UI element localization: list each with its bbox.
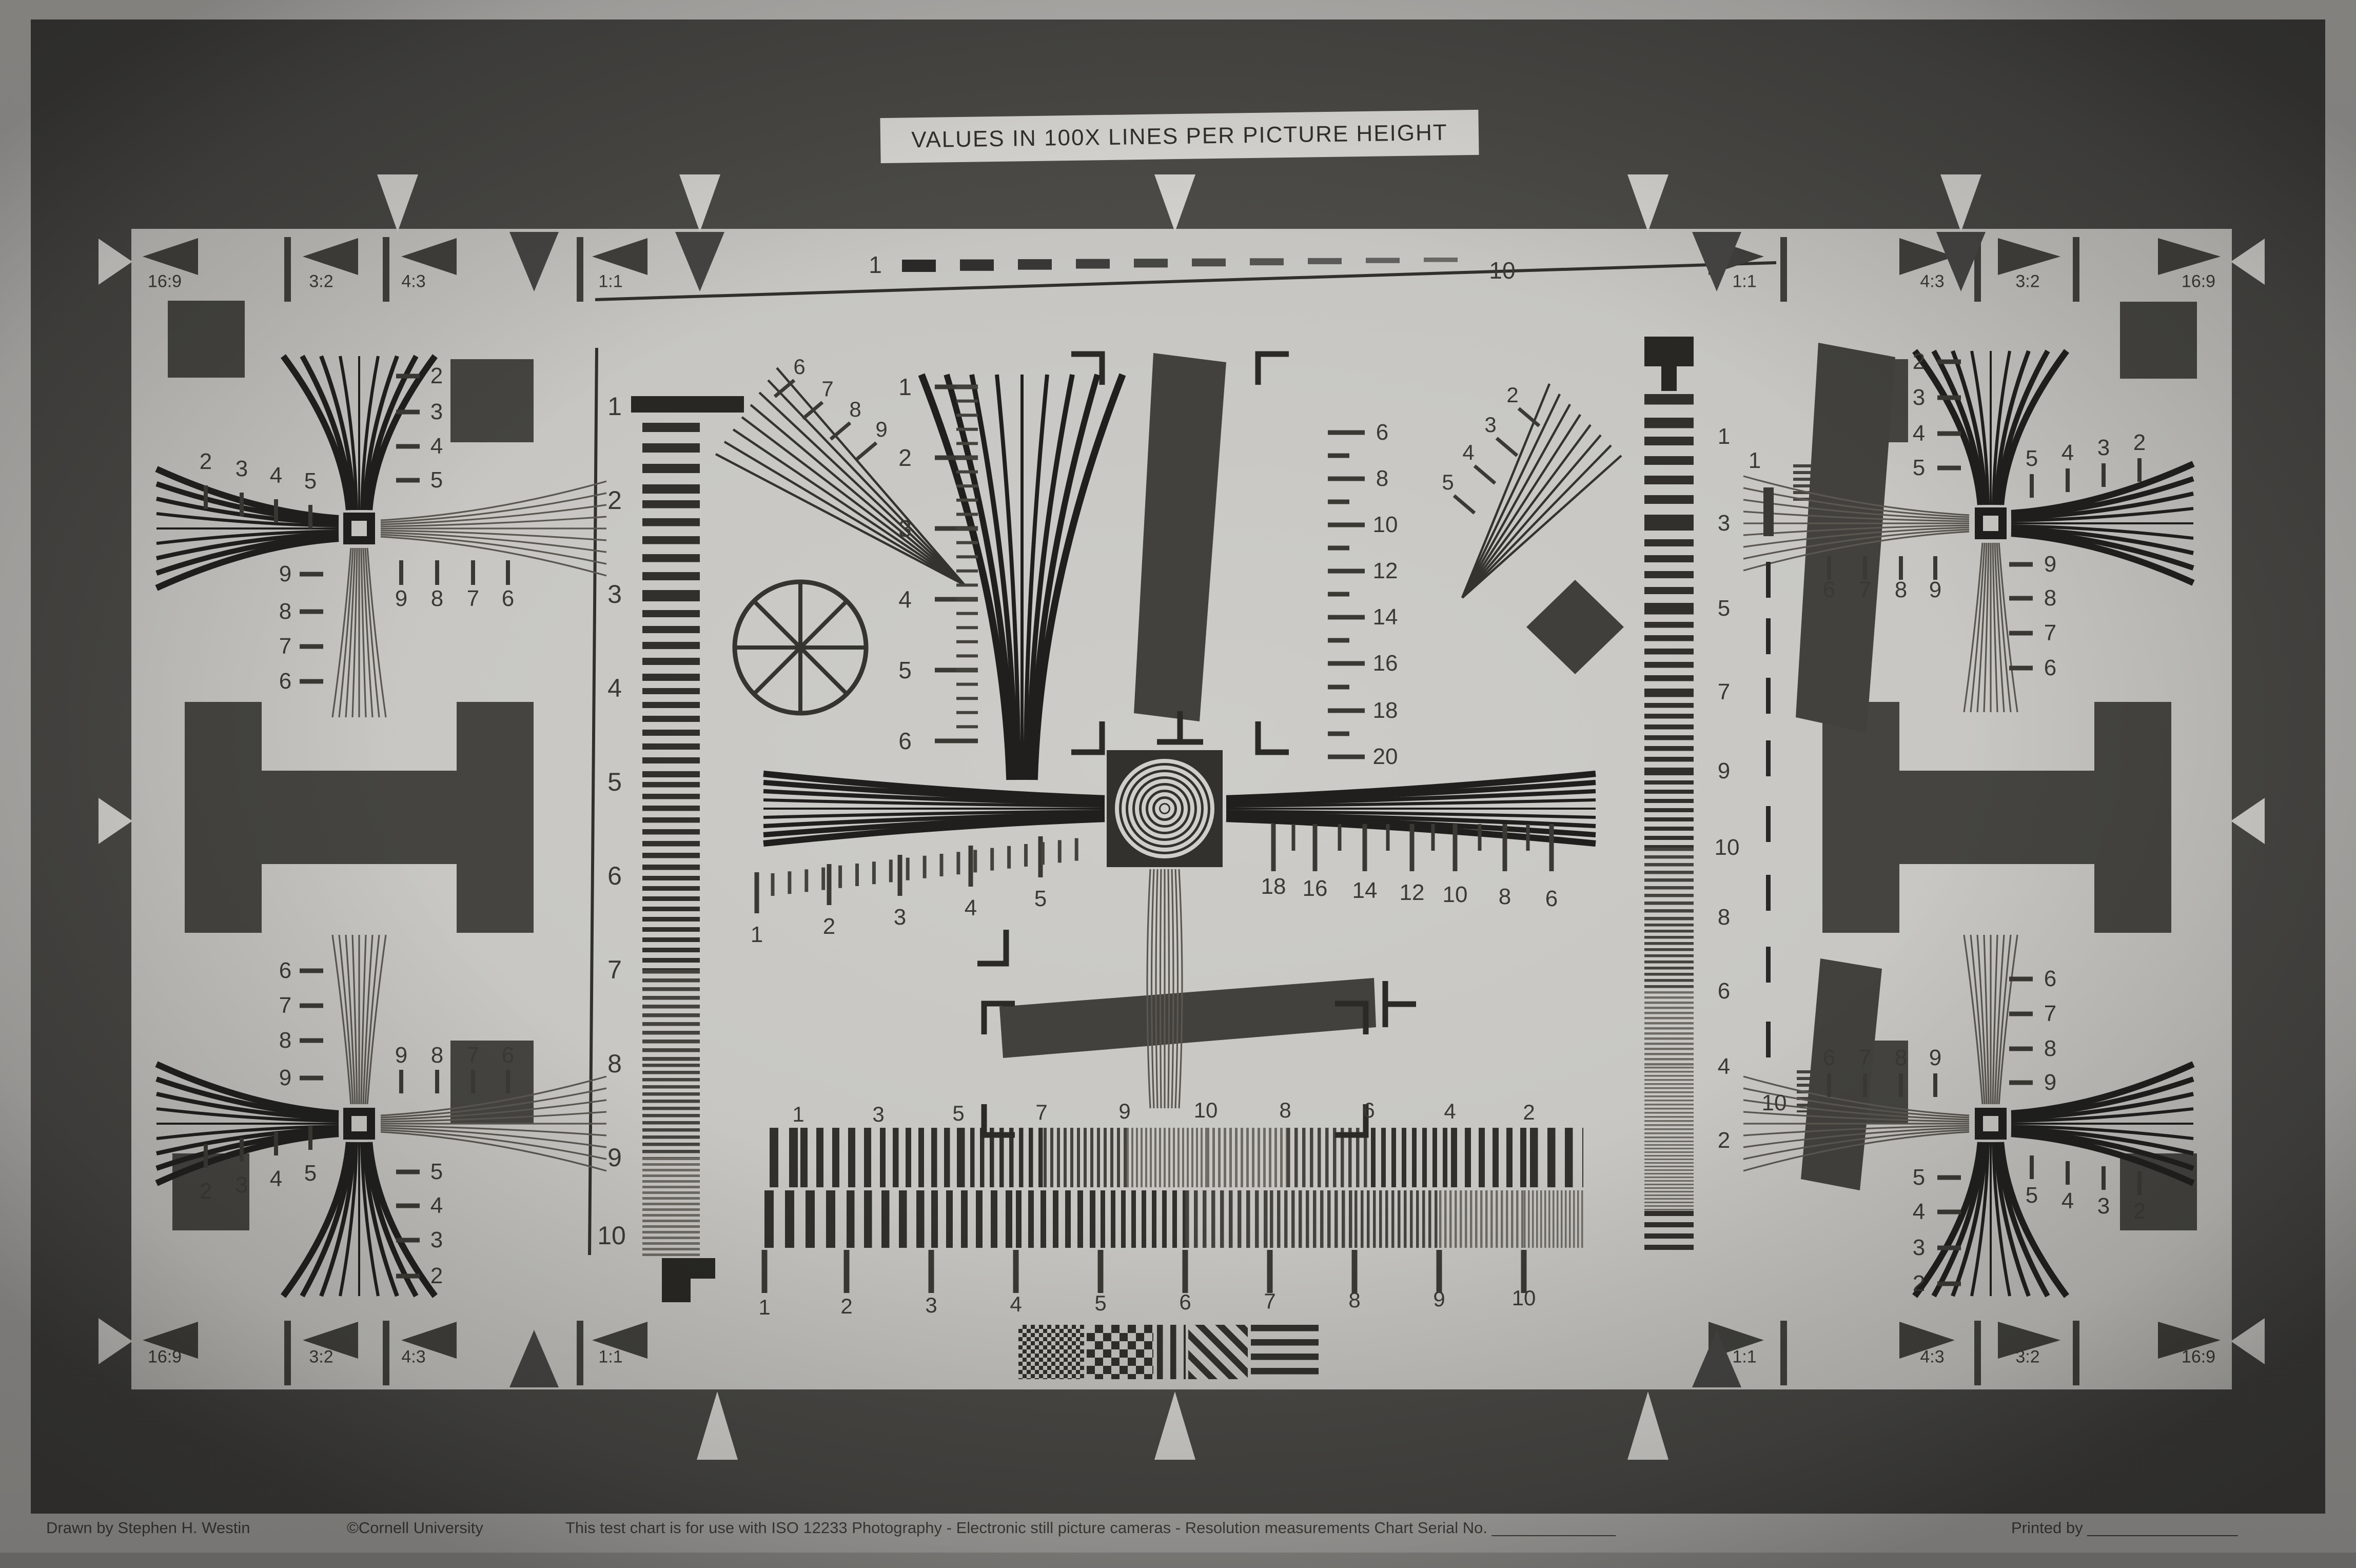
chart-graphics bbox=[0, 0, 2356, 1568]
footer: Drawn by Stephen H. Westin ©Cornell Univ… bbox=[0, 1513, 2356, 1553]
spoked-wheel bbox=[735, 582, 866, 713]
footer-copyright: ©Cornell University bbox=[347, 1519, 483, 1537]
footer-printed-by: Printed by _________________ bbox=[2011, 1519, 2237, 1537]
table-shadow bbox=[0, 1553, 2356, 1568]
footer-credit: Drawn by Stephen H. Westin bbox=[46, 1519, 250, 1537]
footer-description: This test chart is for use with ISO 1223… bbox=[565, 1519, 1616, 1537]
iso12233-test-chart-photo: VALUES IN 100X LINES PER PICTURE HEIGHT bbox=[0, 0, 2356, 1568]
dark-diamond bbox=[1526, 580, 1624, 674]
bullseye-rings bbox=[1107, 750, 1223, 867]
